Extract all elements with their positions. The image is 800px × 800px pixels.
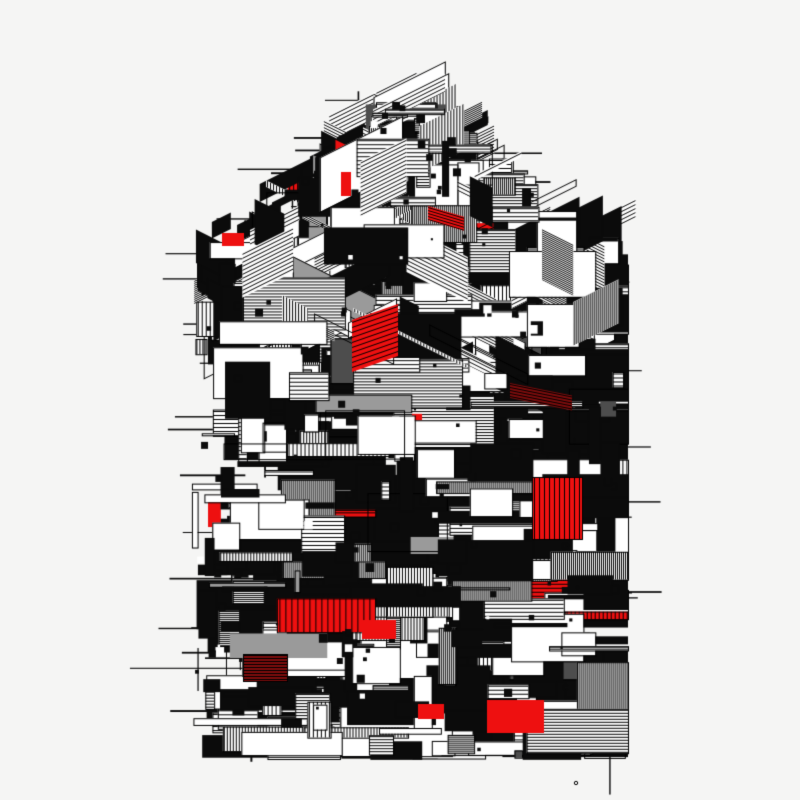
generative-artwork-canvas	[0, 0, 800, 800]
artwork-frame	[0, 0, 800, 800]
